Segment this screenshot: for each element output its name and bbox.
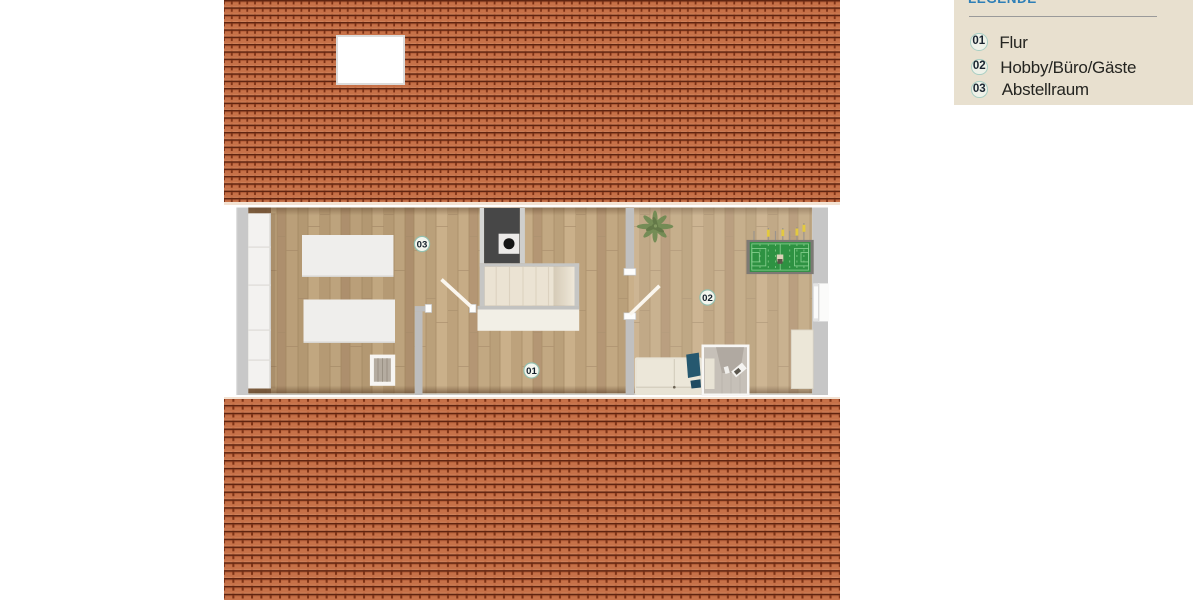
- svg-text:03: 03: [417, 240, 428, 251]
- svg-text:01: 01: [526, 366, 537, 377]
- svg-text:02: 02: [702, 293, 713, 304]
